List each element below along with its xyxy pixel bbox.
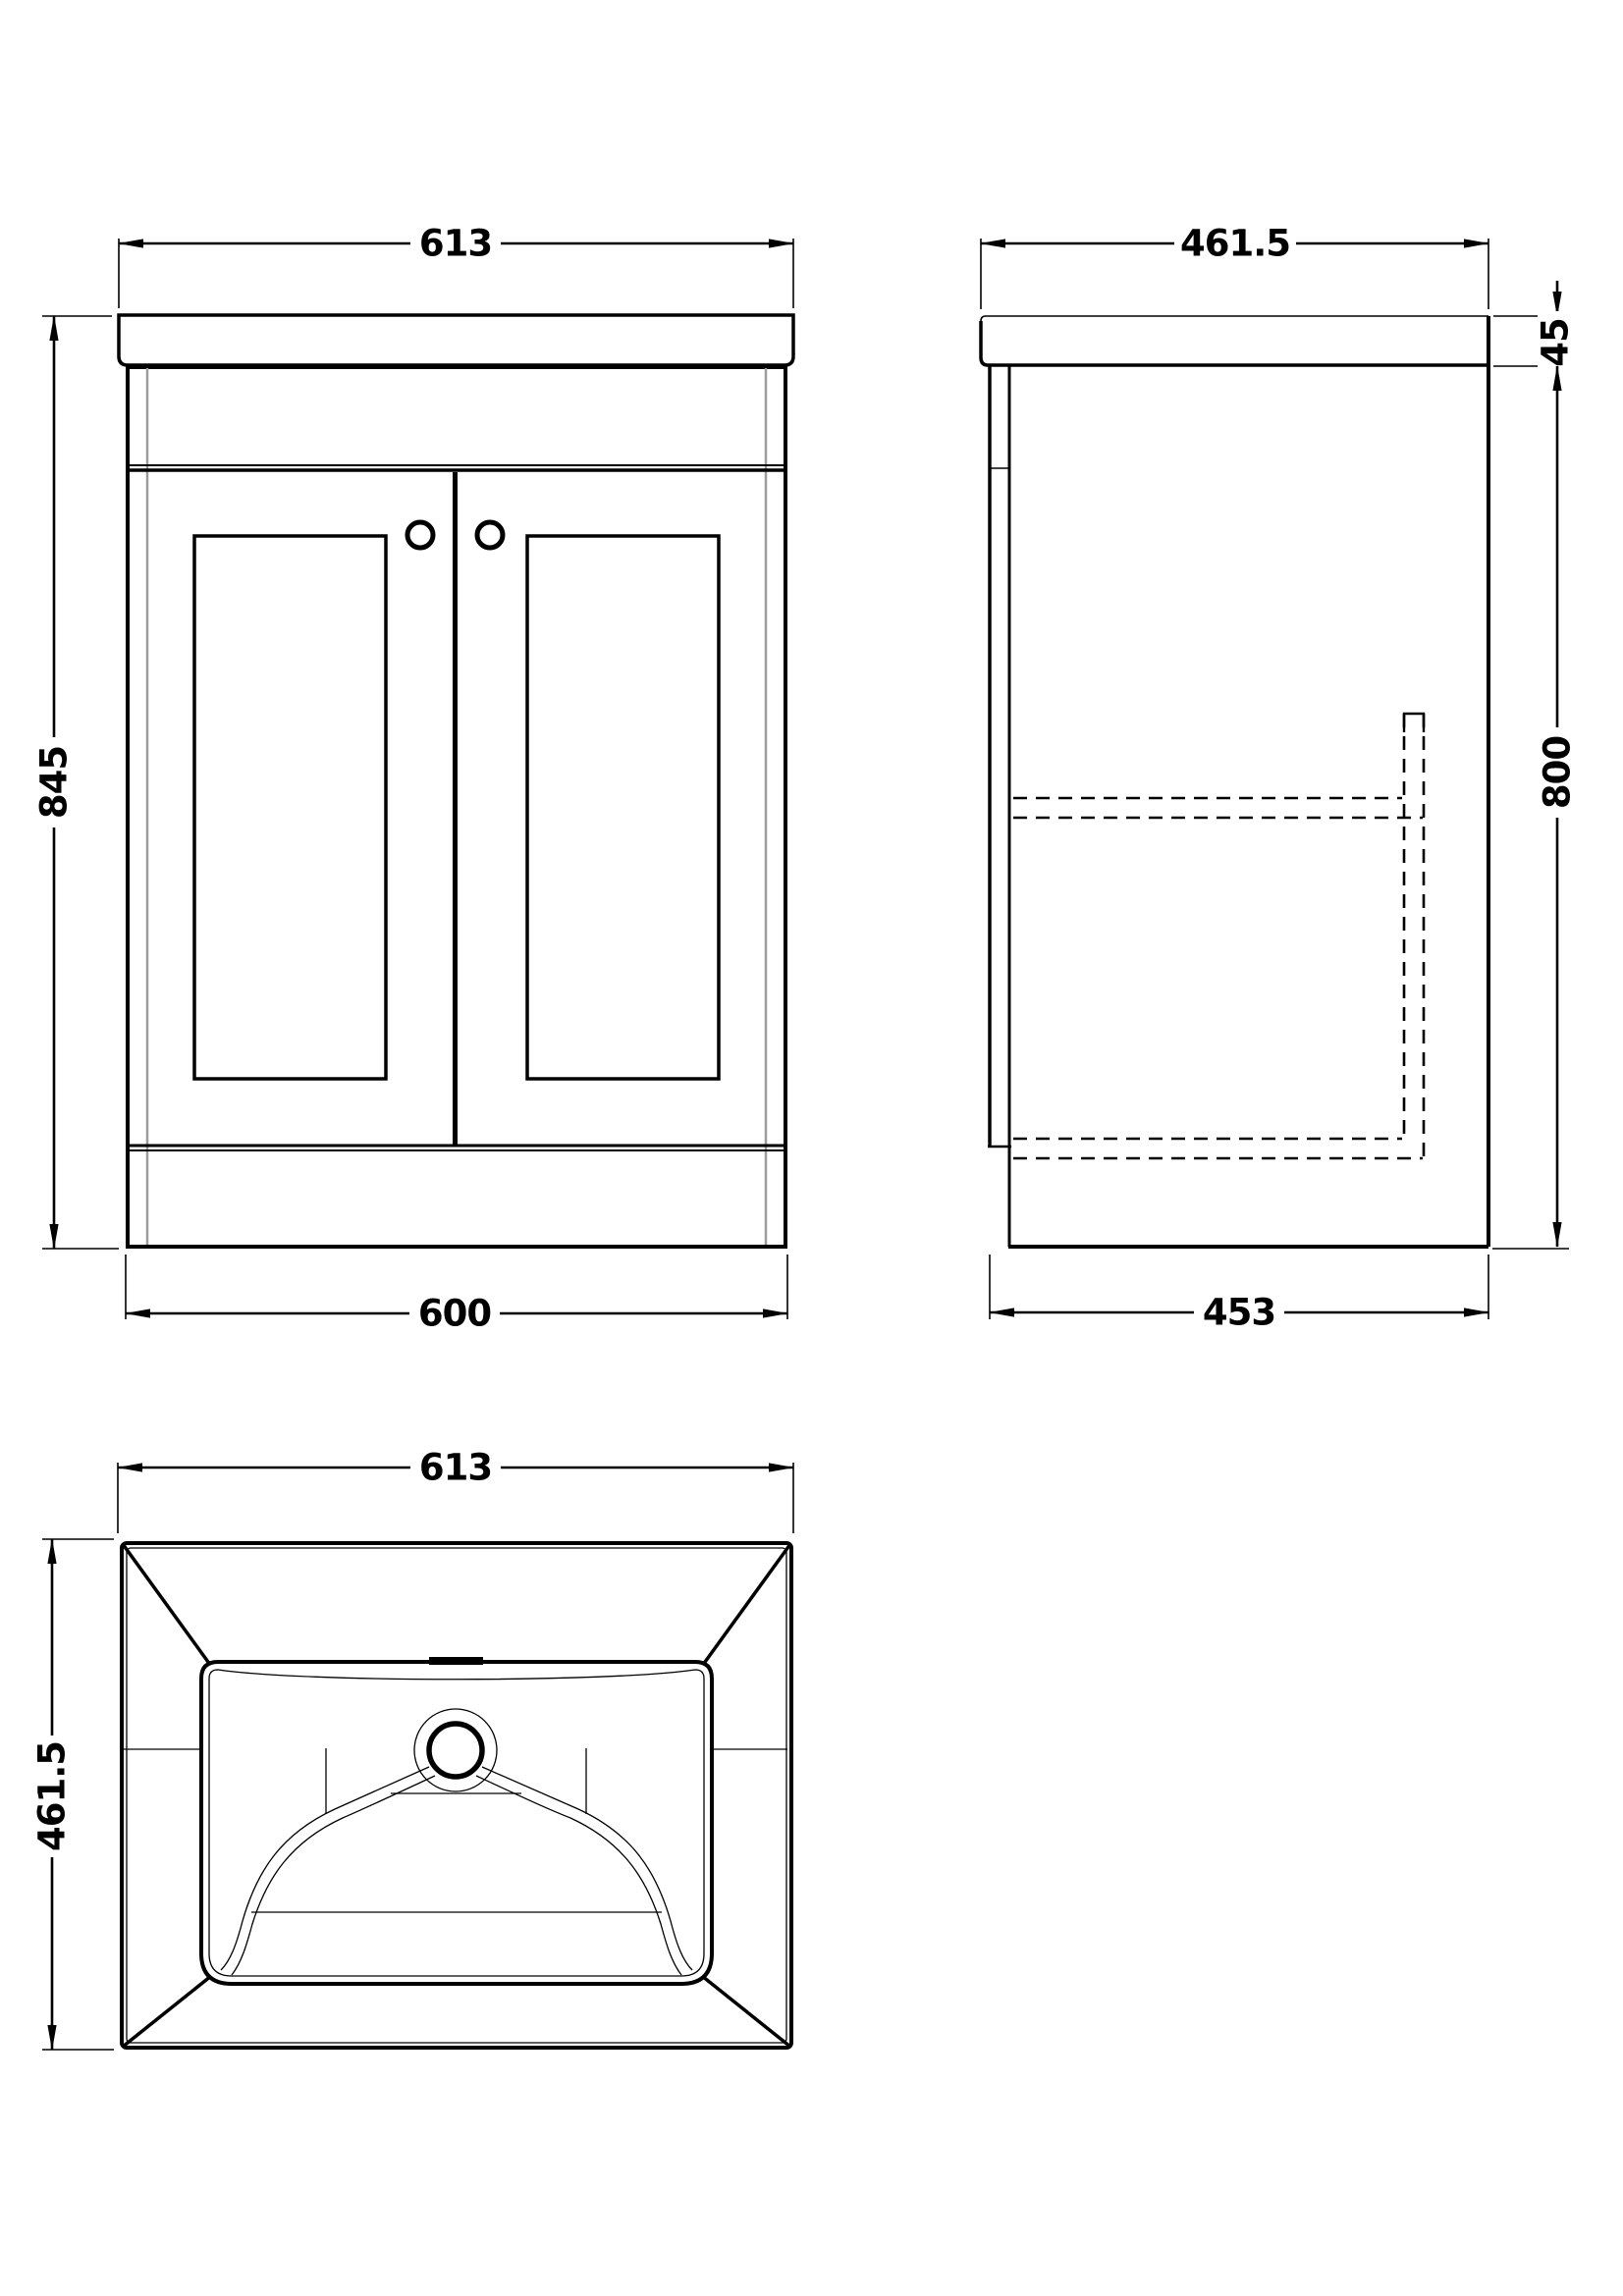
plan-bowl-outline <box>201 1662 712 1984</box>
dim-label-side-body-height: 800 <box>1537 736 1579 809</box>
dim-label-front-width-top: 613 <box>419 223 492 265</box>
dim-label-plan-width: 613 <box>419 1447 492 1489</box>
drawing-sheet: 613 845 600 <box>0 0 1623 2296</box>
front-worktop-outline <box>119 315 793 365</box>
dim-label-side-depth-top: 461.5 <box>1180 223 1290 265</box>
dim-label-plan-depth: 461.5 <box>31 1741 74 1851</box>
dim-label-front-height: 845 <box>33 746 76 819</box>
technical-drawing: 613 845 600 <box>0 0 1623 2296</box>
dim-label-front-width-bottom: 600 <box>418 1293 491 1335</box>
dim-label-side-depth-bottom: 453 <box>1203 1292 1275 1334</box>
dim-label-side-worktop-thickness: 45 <box>1535 318 1577 367</box>
